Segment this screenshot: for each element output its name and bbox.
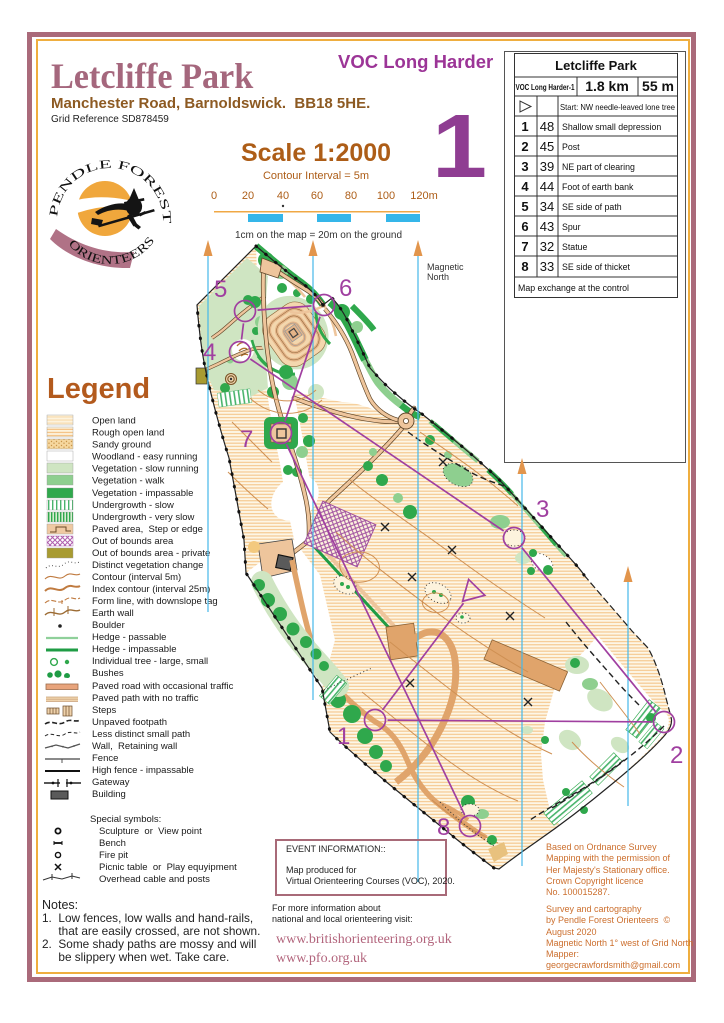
svg-text:4: 4 <box>521 179 529 194</box>
svg-text:44: 44 <box>540 179 554 194</box>
svg-text:Start: NW needle-leaved lone t: Start: NW needle-leaved lone tree <box>560 103 675 112</box>
svg-text:NE part of clearing: NE part of clearing <box>562 162 635 172</box>
svg-text:8: 8 <box>437 814 450 841</box>
svg-text:Open land: Open land <box>92 416 136 427</box>
svg-text:Earth wall: Earth wall <box>92 608 134 619</box>
svg-text:60: 60 <box>311 190 323 202</box>
svg-text:Boulder: Boulder <box>92 620 125 631</box>
svg-text:5: 5 <box>521 199 528 214</box>
svg-text:100: 100 <box>377 190 395 202</box>
svg-text:Fire pit: Fire pit <box>99 850 128 861</box>
svg-text:1: 1 <box>521 119 528 134</box>
svg-text:6: 6 <box>339 275 352 302</box>
svg-text:43: 43 <box>540 219 554 234</box>
svg-text:1: 1 <box>337 723 350 750</box>
svg-text:1.8 km: 1.8 km <box>585 78 629 94</box>
svg-text:45: 45 <box>540 139 554 154</box>
svg-text:5: 5 <box>214 276 227 303</box>
svg-text:Bushes: Bushes <box>92 668 124 679</box>
svg-text:80: 80 <box>345 190 357 202</box>
svg-text:7: 7 <box>240 426 253 453</box>
svg-text:Shallow small depression: Shallow small depression <box>562 122 661 132</box>
svg-text:Post: Post <box>562 142 580 152</box>
svg-text:34: 34 <box>540 199 554 214</box>
svg-text:3: 3 <box>536 496 549 523</box>
svg-text:20: 20 <box>242 190 254 202</box>
svg-text:Gateway: Gateway <box>92 777 130 788</box>
svg-text:Spur: Spur <box>562 222 581 232</box>
svg-text:SE side of path: SE side of path <box>562 202 622 212</box>
svg-text:VOC Long Harder-1: VOC Long Harder-1 <box>516 83 575 92</box>
svg-text:0: 0 <box>211 190 217 202</box>
svg-text:Bench: Bench <box>99 838 126 849</box>
svg-text:4: 4 <box>203 339 216 366</box>
svg-text:Building: Building <box>92 789 126 800</box>
svg-text:40: 40 <box>277 190 289 202</box>
svg-text:3: 3 <box>521 159 528 174</box>
svg-text:Foot of earth bank: Foot of earth bank <box>562 182 634 192</box>
svg-text:39: 39 <box>540 159 554 174</box>
svg-text:Fence: Fence <box>92 753 118 764</box>
svg-text:Steps: Steps <box>92 705 117 716</box>
svg-text:2: 2 <box>521 139 528 154</box>
svg-text:48: 48 <box>540 119 554 134</box>
svg-text:2: 2 <box>670 742 683 769</box>
svg-text:55 m: 55 m <box>642 78 674 94</box>
svg-text:120m: 120m <box>410 190 438 202</box>
svg-text:Letcliffe Park: Letcliffe Park <box>555 58 637 73</box>
svg-text:6: 6 <box>521 219 528 234</box>
